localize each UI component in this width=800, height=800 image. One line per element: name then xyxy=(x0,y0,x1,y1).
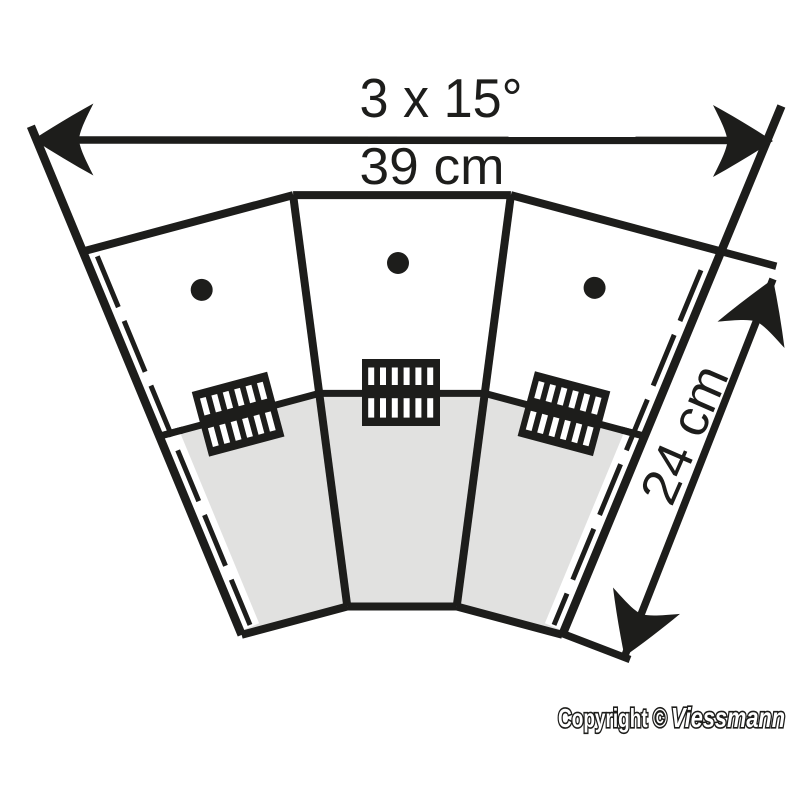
svg-text:Copyright ©: Copyright © xyxy=(558,703,667,733)
svg-text:3 x 15°: 3 x 15° xyxy=(360,67,523,129)
svg-text:Viessmann: Viessmann xyxy=(671,702,785,733)
svg-text:39 cm: 39 cm xyxy=(360,138,505,196)
